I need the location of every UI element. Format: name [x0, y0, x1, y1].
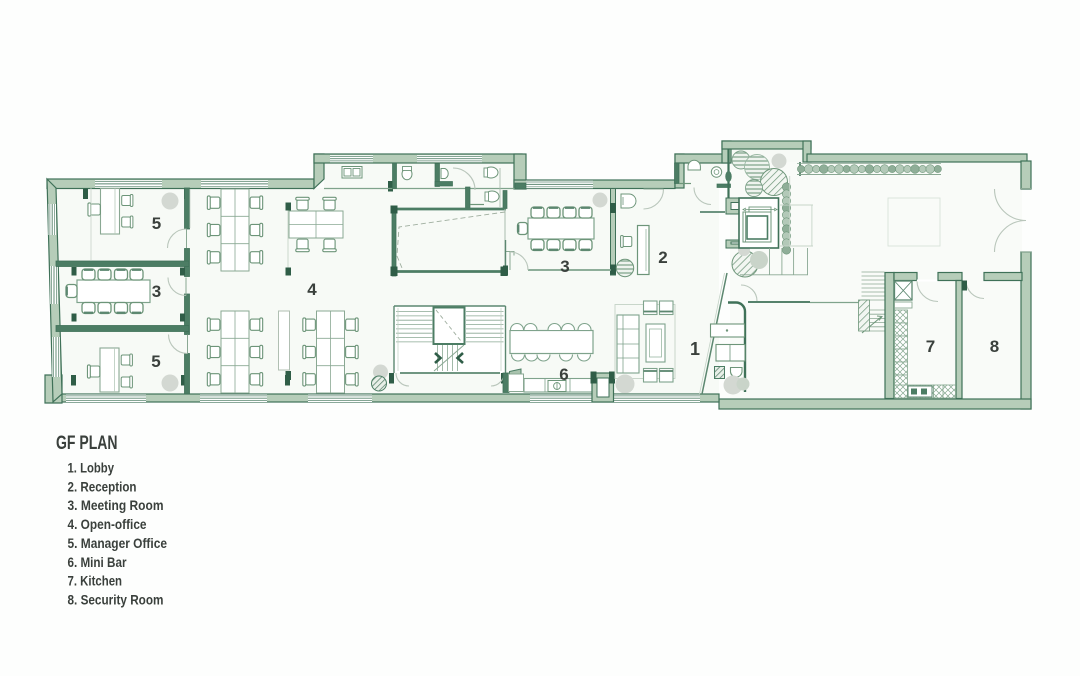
svg-text:3: 3	[152, 282, 161, 301]
svg-text:7: 7	[926, 337, 935, 356]
svg-text:4. Open-office: 4. Open-office	[68, 517, 147, 532]
svg-text:7. Kitchen: 7. Kitchen	[68, 574, 123, 589]
svg-text:5: 5	[152, 214, 161, 233]
svg-text:6: 6	[559, 365, 568, 384]
svg-text:6. Mini Bar: 6. Mini Bar	[68, 555, 128, 570]
svg-text:3: 3	[560, 257, 569, 276]
svg-text:1. Lobby: 1. Lobby	[68, 461, 115, 476]
svg-text:4: 4	[307, 280, 317, 299]
svg-text:1: 1	[690, 339, 700, 359]
svg-text:GF PLAN: GF PLAN	[56, 432, 118, 454]
svg-text:8. Security Room: 8. Security Room	[68, 593, 164, 608]
svg-text:2. Reception: 2. Reception	[68, 479, 137, 494]
svg-text:2: 2	[658, 248, 667, 267]
svg-text:5: 5	[151, 352, 160, 371]
svg-text:3. Meeting Room: 3. Meeting Room	[68, 498, 164, 513]
svg-text:5. Manager Office: 5. Manager Office	[68, 536, 168, 551]
svg-text:8: 8	[990, 337, 999, 356]
